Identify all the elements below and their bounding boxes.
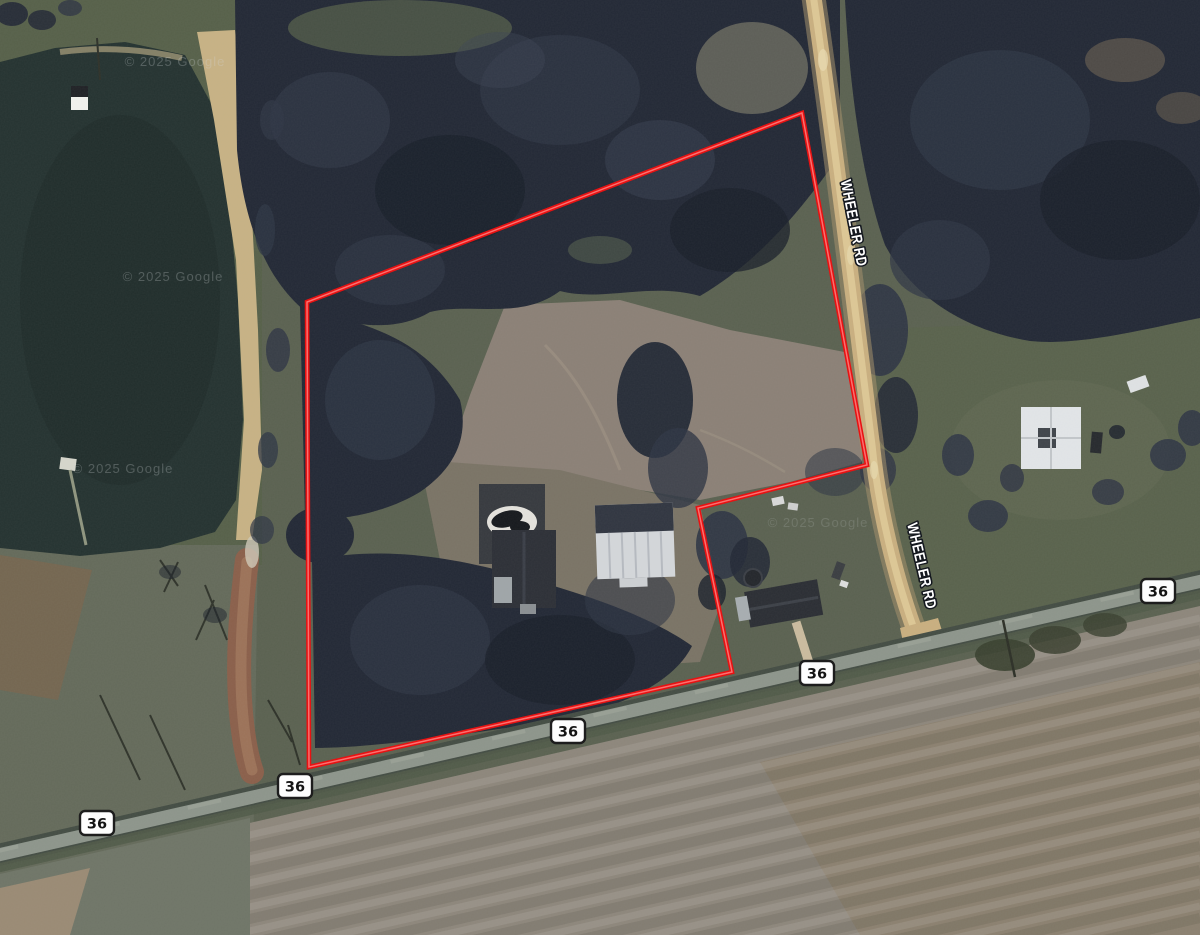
- route-36-shield: 36: [80, 811, 114, 835]
- svg-text:36: 36: [285, 780, 305, 796]
- svg-text:36: 36: [807, 667, 827, 683]
- google-watermark: © 2025 Google: [73, 461, 174, 476]
- google-watermark: © 2025 Google: [768, 515, 869, 530]
- route-36-shield: 36: [800, 661, 834, 685]
- svg-text:36: 36: [1148, 585, 1168, 601]
- google-watermark: © 2025 Google: [125, 54, 226, 69]
- route-36-shield: 36: [1141, 579, 1175, 603]
- svg-text:36: 36: [558, 725, 578, 741]
- map-canvas: WHEELER RD WHEELER RD 36 36 36 36 36 © 2…: [0, 0, 1200, 935]
- route-36-shield: 36: [551, 719, 585, 743]
- route-36-shield: 36: [278, 774, 312, 798]
- google-watermark: © 2025 Google: [123, 269, 224, 284]
- satellite-map-view[interactable]: WHEELER RD WHEELER RD 36 36 36 36 36 © 2…: [0, 0, 1200, 935]
- svg-text:36: 36: [87, 817, 107, 833]
- grain-overlay: [0, 0, 1200, 935]
